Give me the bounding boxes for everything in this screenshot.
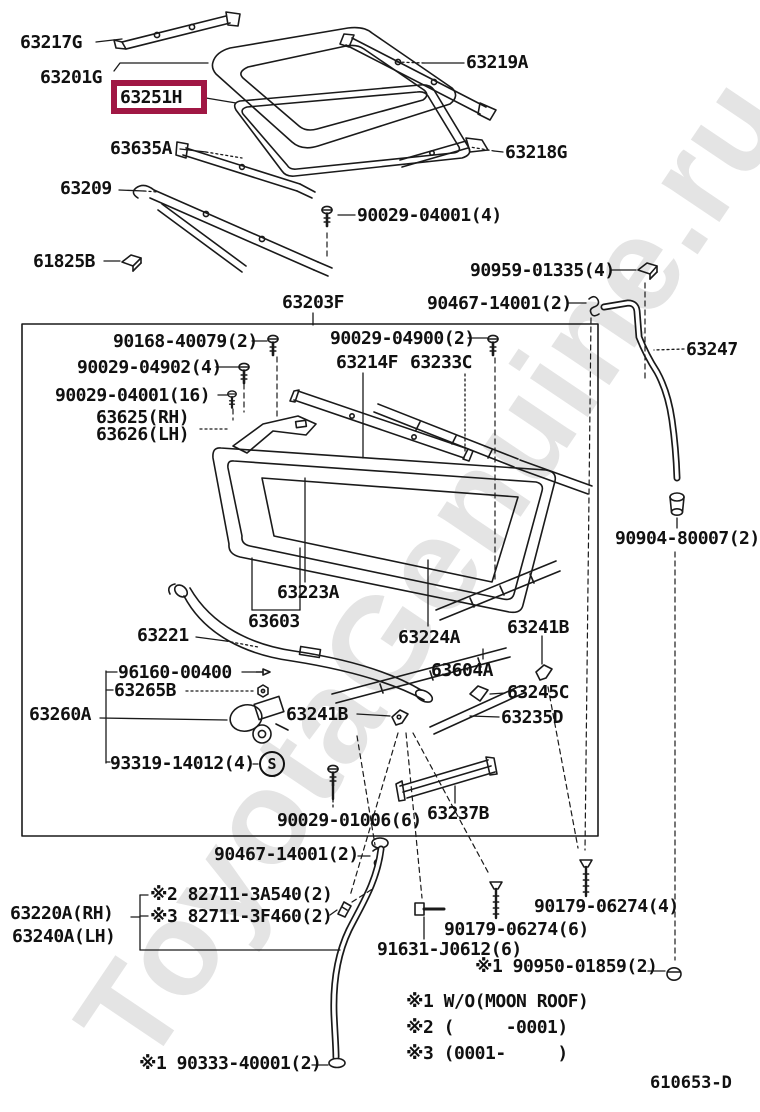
part-label-90179-06274-6[interactable]: 90179-06274(6) xyxy=(444,920,589,939)
part-label-90029-04900[interactable]: 90029-04900(2) xyxy=(330,329,475,348)
part-label-90950-01859[interactable]: ※1 90950-01859(2) xyxy=(475,957,657,976)
part-label-63240a-lh[interactable]: 63240A(LH) xyxy=(12,927,115,946)
part-label-63224a[interactable]: 63224A xyxy=(398,628,460,647)
part-label-63603[interactable]: 63603 xyxy=(248,612,300,631)
rail-63224a-drawing xyxy=(436,561,560,620)
part-label-63265b[interactable]: 63265B xyxy=(114,681,176,700)
grommet-90904-icon xyxy=(670,493,684,515)
part-label-63245c[interactable]: 63245C xyxy=(507,683,569,702)
rail-63217g xyxy=(114,12,240,49)
part-label-90029-01006[interactable]: 90029-01006(6) xyxy=(277,811,422,830)
screw-90179-6-icon xyxy=(490,882,502,918)
nut-63265b-icon xyxy=(258,685,268,697)
hose-63247 xyxy=(604,303,677,478)
part-label-63241b-right[interactable]: 63241B xyxy=(507,618,569,637)
rail-63219a xyxy=(340,34,496,120)
clip-82711-icon xyxy=(338,902,351,917)
part-label-90029-04902[interactable]: 90029-04902(4) xyxy=(77,358,222,377)
screw-90029-01006-icon xyxy=(328,765,338,799)
glass-panel-63201g xyxy=(212,28,455,148)
part-label-82711-3a540[interactable]: ※2 82711-3A540(2) xyxy=(150,885,332,904)
bolt-91631-icon xyxy=(415,903,444,915)
screw-90179-4-icon xyxy=(580,860,592,896)
clip-63241b-left-icon xyxy=(392,710,408,725)
part-label-63604a[interactable]: 63604A xyxy=(431,661,493,680)
s-symbol: S xyxy=(259,751,285,777)
grommet-90950-icon xyxy=(667,968,681,980)
part-label-63221[interactable]: 63221 xyxy=(137,626,189,645)
part-label-63209[interactable]: 63209 xyxy=(60,179,112,198)
part-label-63219a[interactable]: 63219A xyxy=(466,53,528,72)
highlighted-part-number: 63251H xyxy=(117,87,182,108)
part-label-90029-04001-4[interactable]: 90029-04001(4) xyxy=(357,206,502,225)
part-label-61825b[interactable]: 61825B xyxy=(33,252,95,271)
clip-90959-icon xyxy=(638,263,657,279)
part-label-63223a[interactable]: 63223A xyxy=(277,583,339,602)
clip-63245c-icon xyxy=(470,686,488,701)
frame-63209 xyxy=(133,185,332,276)
clip-61825b-icon xyxy=(122,255,141,271)
part-label-63241b-left[interactable]: 63241B xyxy=(286,705,348,724)
part-label-90959-01335[interactable]: 90959-01335(4) xyxy=(470,261,615,280)
part-label-63237b[interactable]: 63237B xyxy=(427,804,489,823)
clip-63241b-right-icon xyxy=(536,665,552,680)
part-label-63626-lh[interactable]: 63626(LH) xyxy=(96,425,189,444)
rail-63237b-drawing xyxy=(396,757,497,801)
part-label-90467-14001-top[interactable]: 90467-14001(2) xyxy=(427,294,572,313)
part-label-63218g[interactable]: 63218G xyxy=(505,143,567,162)
part-label-63635a[interactable]: 63635A xyxy=(110,139,172,158)
part-label-63201g[interactable]: 63201G xyxy=(40,68,102,87)
part-label-63235d[interactable]: 63235D xyxy=(501,708,563,727)
diagram-code: 610653-D xyxy=(650,1073,732,1093)
footnote-3: ※3 (0001- ) xyxy=(406,1044,568,1063)
footnote-1: ※1 W/O(MOON ROOF) xyxy=(406,992,588,1011)
part-label-90179-06274-4[interactable]: 90179-06274(4) xyxy=(534,897,679,916)
footnote-2: ※2 ( -0001) xyxy=(406,1018,568,1037)
part-label-63217g[interactable]: 63217G xyxy=(20,33,82,52)
grease-fitting-96160-icon xyxy=(256,669,270,675)
hook-90467-top-icon xyxy=(589,297,599,316)
screw-90029-04001-4-icon xyxy=(322,206,332,226)
part-label-90333-40001[interactable]: ※1 90333-40001(2) xyxy=(139,1054,321,1073)
part-label-90467-14001-bottom[interactable]: 90467-14001(2) xyxy=(214,845,359,864)
bracket-63625-drawing xyxy=(233,416,316,453)
part-label-63247[interactable]: 63247 xyxy=(686,340,738,359)
part-label-90168-40079[interactable]: 90168-40079(2) xyxy=(113,332,258,351)
part-label-63214f[interactable]: 63214F xyxy=(336,353,398,372)
part-label-63233c[interactable]: 63233C xyxy=(410,353,472,372)
part-label-63260a[interactable]: 63260A xyxy=(29,705,91,724)
drain-hose-63220a xyxy=(329,849,381,1068)
part-label-93319-14012[interactable]: 93319-14012(4) xyxy=(110,754,255,773)
part-label-82711-3f460[interactable]: ※3 82711-3F460(2) xyxy=(150,907,332,926)
weatherstrip-63251h xyxy=(235,85,470,176)
highlighted-part-63251h[interactable]: 63251H xyxy=(111,80,207,114)
rail-63214f-drawing xyxy=(290,390,473,461)
part-label-90029-04001-16[interactable]: 90029-04001(16) xyxy=(55,386,210,405)
rail-63233c-drawing xyxy=(374,404,592,494)
part-label-90904-80007[interactable]: 90904-80007(2) xyxy=(615,529,760,548)
housing-frame-63203f xyxy=(213,448,555,612)
motor-63260a-drawing xyxy=(227,696,288,743)
part-label-63203f[interactable]: 63203F xyxy=(282,293,344,312)
parts-diagram-canvas: ToyotaGenuine.ru xyxy=(0,0,760,1112)
part-label-63220a-rh[interactable]: 63220A(RH) xyxy=(10,904,113,923)
